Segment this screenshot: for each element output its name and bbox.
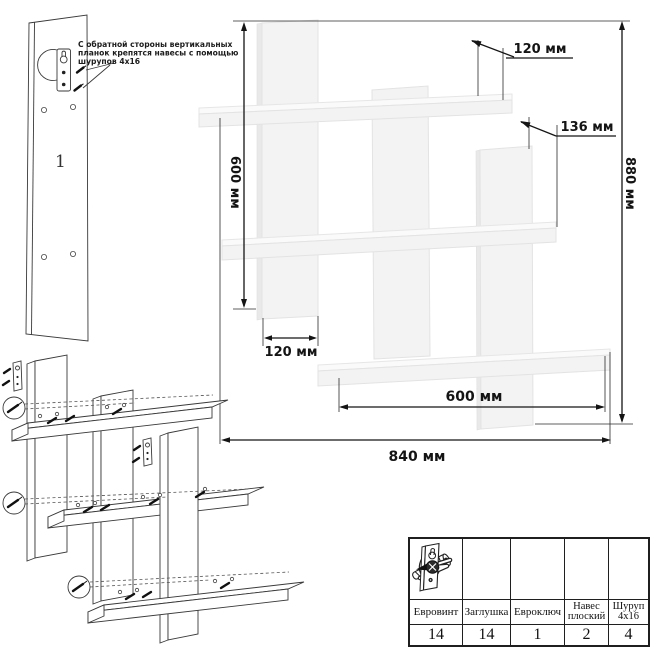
plug-cap-icon (463, 538, 511, 600)
hardware-name-eurovint: Евровинт (409, 600, 463, 625)
dim-label-120-top: 120 мм (514, 42, 567, 57)
left-plank-edge (257, 23, 262, 320)
assembly-note: С обратной стороны вертикальных планок к… (78, 40, 239, 66)
screw-4x16-icon (609, 538, 650, 600)
hardware-name-row: Евровинт Заглушка Евроключ Навес плоский… (409, 600, 649, 625)
exploded-assembly-view (3, 355, 304, 643)
dim-top-depth: 120 мм (471, 40, 573, 58)
hardware-table: Евровинт Заглушка Евроключ Навес плоский… (408, 537, 650, 647)
dim-left-height: 600 мм (227, 22, 247, 308)
dim-label-880: 880 мм (622, 157, 637, 210)
hardware-qty-row: 14 14 1 2 4 (409, 625, 649, 647)
hardware-qty-evroklyuch: 1 (511, 625, 565, 647)
hardware-name-evroklyuch: Евроключ (511, 600, 565, 625)
exploded-plank-left (27, 355, 67, 561)
left-plank (262, 20, 318, 319)
hardware-qty-eurovint: 14 (409, 625, 463, 647)
hardware-name-naves: Навес плоский (565, 600, 609, 625)
shelf-top (199, 94, 512, 127)
hardware-qty-naves: 2 (565, 625, 609, 647)
mini-hanger-1 (3, 361, 22, 391)
note-line-3: шурупов 4х16 (78, 57, 140, 66)
hardware-name-shurup: Шуруп 4х16 (609, 600, 650, 625)
dim-label-600-bottom: 600 мм (446, 389, 503, 405)
hex-key-icon (511, 538, 565, 600)
dim-plank-width: 120 мм (264, 335, 317, 360)
dim-shelf-span: 600 мм (339, 389, 605, 410)
middle-plank (372, 86, 430, 359)
hardware-icon-row (409, 538, 649, 600)
dim-label-120-bottom: 120 мм (265, 345, 318, 360)
assembly-instruction-sheet: 1 С обратной стороны вертикальных планок… (0, 0, 650, 650)
exploded-shelf-2 (48, 487, 264, 528)
screw-callout-1 (3, 397, 25, 419)
right-plank (480, 146, 533, 429)
flat-hanger-icon (565, 538, 609, 600)
hardware-name-zaglushka: Заглушка (463, 600, 511, 625)
screw-callout-2 (3, 492, 25, 514)
hanger-bracket-icon (57, 49, 71, 91)
screw-callout-3 (68, 576, 90, 598)
plank-detail-view: 1 С обратной стороны вертикальных планок… (26, 15, 239, 341)
main-shelf-drawing: 600 мм 880 мм 120 мм 136 мм (199, 20, 637, 465)
dim-right-depth: 136 мм (520, 120, 616, 136)
mini-hanger-2 (133, 438, 152, 466)
dim-label-136: 136 мм (561, 120, 614, 135)
hardware-qty-zaglushka: 14 (463, 625, 511, 647)
dim-total-height: 880 мм (619, 21, 637, 423)
shelf-bottom (318, 349, 610, 386)
dim-label-840: 840 мм (389, 449, 446, 465)
part-number-label: 1 (55, 152, 66, 172)
dim-label-600-left: 600 мм (227, 156, 242, 209)
hardware-qty-shurup: 4 (609, 625, 650, 647)
dim-total-width: 840 мм (221, 437, 611, 465)
